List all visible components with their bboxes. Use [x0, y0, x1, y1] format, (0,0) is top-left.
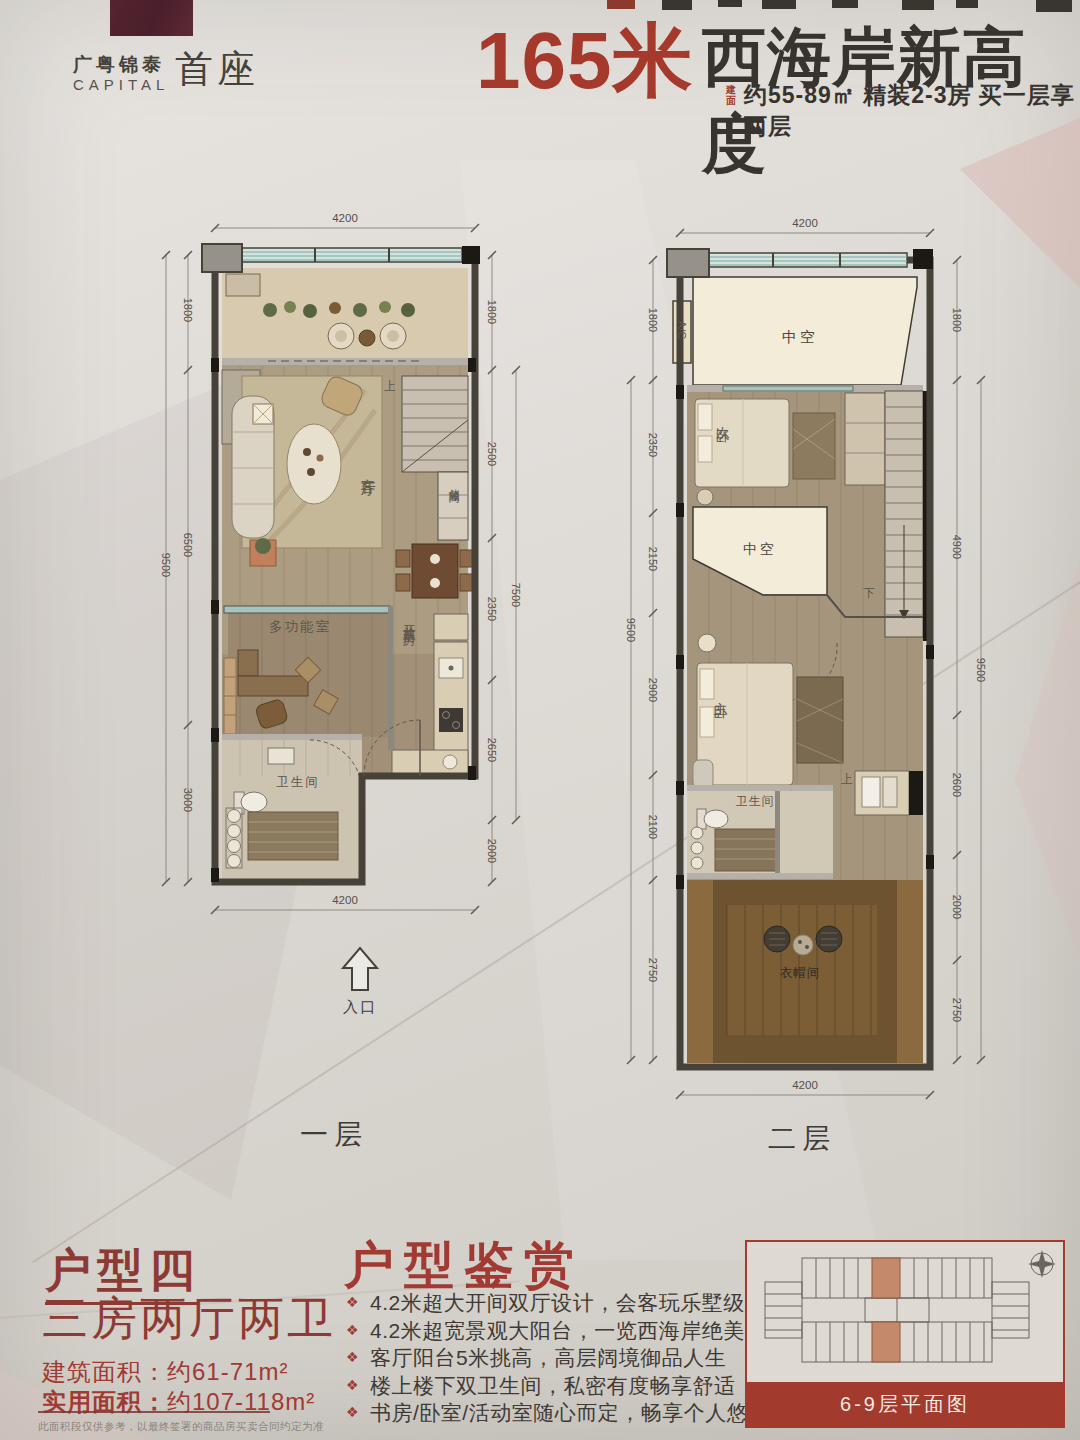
dim-bottom: 4200 [265, 894, 425, 906]
area-usable-line: 实用面积：约107-118m² [42, 1386, 315, 1418]
headline-height-number: 165米 [476, 8, 693, 116]
room-label-bath1: 卫生间 [258, 774, 338, 791]
dim2-right-0: 1800 [950, 298, 964, 342]
dim2-left-5: 2750 [646, 948, 660, 992]
dim2-left-0: 1800 [646, 298, 660, 342]
cropped-headline-fragment [718, 0, 742, 7]
dim-top: 4200 [265, 212, 425, 224]
dim2-right-4: 2750 [950, 988, 964, 1032]
room-label-void-mid: 中空 [720, 541, 800, 559]
compass-icon [1028, 1250, 1056, 1278]
room-label-master: 主卧 [711, 691, 729, 697]
dim-left-1: 6500 [181, 523, 195, 567]
features-list: 4.2米超大开间双厅设计，会客玩乐墅级尊贵 4.2米超宽景观大阳台，一览西海岸绝… [346, 1289, 813, 1427]
room-label-void-top: 中空 [760, 328, 840, 347]
dim2-bottom: 4200 [725, 1079, 885, 1091]
stair-up-label: 上 [384, 378, 396, 395]
floor1-caption: 一层 [300, 1116, 368, 1154]
dim-left-2: 3000 [181, 778, 195, 822]
subtitle-prefix-char1: 建 [726, 84, 736, 95]
room-label-ac: A/C [675, 308, 689, 352]
headline-subtitle: 约55-89㎡ 精装2-3房 买一层享两层 [744, 80, 1080, 142]
dim2-left-2: 2150 [646, 537, 660, 581]
floor2-caption: 二层 [768, 1120, 836, 1158]
dim2-left-4: 2100 [646, 805, 660, 849]
mini-floorplate-caption: 6-9层平面图 [747, 1382, 1063, 1426]
area-build-value: 约61-71m² [167, 1358, 288, 1385]
stair-up-label2: 上 [841, 771, 853, 788]
feature-item: 书房/卧室/活动室随心而定，畅享个人悠然片刻 [346, 1399, 813, 1427]
dim-right-4: 2000 [485, 829, 499, 873]
brand-logo-mark [110, 0, 193, 36]
room-label-multi: 多功能室 [242, 618, 358, 636]
feature-item: 客厅阳台5米挑高，高层阔境御品人生 [346, 1344, 813, 1372]
room-label-bath2: 卫生间 [713, 793, 797, 810]
mini-floorplate-box: 6-9层平面图 [745, 1240, 1065, 1428]
entrance-arrow-icon [343, 948, 377, 990]
dim2-right-1: 4900 [950, 525, 964, 569]
dim2-left-1: 2350 [646, 423, 660, 467]
brand-name-en: CAPITAL [73, 76, 169, 93]
highlighted-unit-top [872, 1258, 900, 1298]
feature-item: 4.2米超大开间双厅设计，会客玩乐墅级尊贵 [346, 1289, 813, 1317]
cropped-headline-fragment [1036, 0, 1072, 12]
subtitle-prefix-char2: 面 [726, 95, 736, 106]
dim-right-1: 2500 [485, 432, 499, 476]
room-label-storage: 储藏间 [446, 480, 461, 486]
floor-plan-2: 中空 A/C 次卧 中空 主卧 卫生间 衣帽间 下 上 4200 4200 18… [615, 215, 1035, 1115]
feature-item: 楼上楼下双卫生间，私密有度畅享舒适 [346, 1372, 813, 1400]
area-build-label: 建筑面积： [42, 1358, 167, 1385]
stair-down-label: 下 [863, 585, 875, 602]
dim-right-3: 2650 [485, 728, 499, 772]
dim2-left-total: 9500 [624, 608, 638, 652]
flyer-page: 广粤锦泰 CAPITAL 首座 165米 西海岸新高度 建面 约55-89㎡ 精… [0, 0, 1080, 1440]
brand-name-cn: 广粤锦泰 [73, 52, 165, 78]
dim-right-2: 2350 [485, 587, 499, 631]
feature-item-text: 客厅阳台5米挑高，高层阔境御品人生 [370, 1346, 726, 1369]
cropped-headline-fragment [902, 0, 934, 10]
dim2-top: 4200 [725, 217, 885, 229]
room-label-bed2: 次卧 [713, 415, 731, 421]
feature-item-text: 楼上楼下双卫生间，私密有度畅享舒适 [370, 1374, 736, 1397]
feature-item-text: 4.2米超宽景观大阳台，一览西海岸绝美大境 [370, 1319, 788, 1342]
room-label-living: 客厅 [358, 466, 377, 472]
dim2-right-3: 2000 [950, 885, 964, 929]
floor-plan-1: 客厅 储藏间 多功能室 开放式厨房 卫生间 上 入口 4200 4200 180… [150, 210, 560, 1020]
entrance-label: 入口 [320, 998, 400, 1017]
cropped-headline-fragment [832, 0, 858, 8]
feature-item: 4.2米超宽景观大阳台，一览西海岸绝美大境 [346, 1317, 813, 1345]
room-label-closet: 衣帽间 [760, 965, 840, 982]
brand-project-name: 首座 [175, 44, 259, 95]
dim-left-0: 1800 [181, 288, 195, 332]
room-label-kitchen: 开放式厨房 [400, 614, 417, 624]
highlighted-unit-bottom [872, 1322, 900, 1362]
disclaimer-text: 此面积段仅供参考，以最终签署的商品房买卖合同约定为准 [38, 1420, 324, 1434]
info-divider-line [38, 1411, 270, 1413]
dim2-right-2: 2600 [950, 763, 964, 807]
dim2-right-total: 9500 [974, 648, 988, 692]
cropped-headline-fragment [956, 0, 978, 8]
dim-left-total: 9500 [159, 543, 173, 587]
subtitle-prefix: 建面 [726, 84, 738, 106]
cropped-headline-fragment [762, 0, 796, 9]
dim-right-total: 7500 [509, 573, 523, 617]
dim2-left-3: 2900 [646, 668, 660, 712]
feature-item-text: 4.2米超大开间双厅设计，会客玩乐墅级尊贵 [370, 1291, 788, 1314]
area-build-line: 建筑面积：约61-71m² [42, 1356, 288, 1388]
dim-right-0: 1800 [485, 290, 499, 334]
unit-layout-title: 三房两厅两卫 [42, 1288, 336, 1350]
mini-floorplate-drawing [747, 1242, 1063, 1382]
